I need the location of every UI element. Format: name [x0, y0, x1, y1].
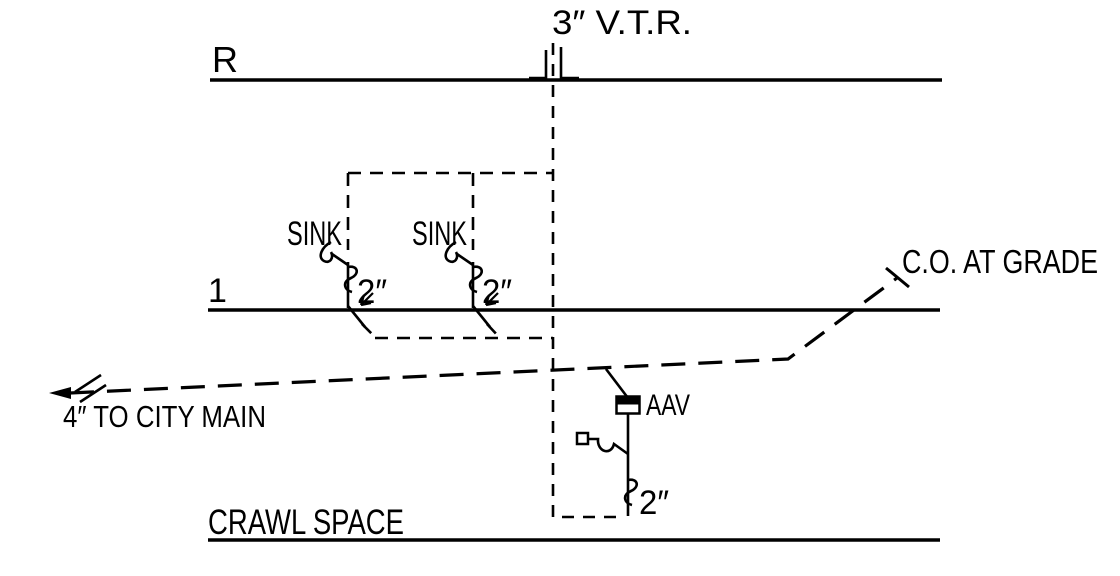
roof-level-label: R: [212, 39, 238, 80]
fixture-trap-arm: [588, 439, 628, 454]
aav-group: AAV 2″: [577, 369, 690, 522]
under-floor-branch-dashed-line: [362, 324, 553, 338]
pipe-break-marks: [75, 375, 106, 402]
aav-size-label: 2″: [639, 484, 669, 522]
aav-label: AAV: [646, 389, 690, 422]
aav-valve-cap: [617, 397, 640, 405]
diagram-svg: R 1 CRAWL SPACE 3″ V.T.R. SINK 2″ SINK 2…: [0, 0, 1120, 576]
fixture-outlet-box: [577, 433, 588, 444]
drain-direction-arrowhead: [49, 387, 71, 399]
to-city-main-label: 4″ TO CITY MAIN: [63, 399, 266, 434]
crawl-space-label: CRAWL SPACE: [208, 503, 404, 542]
aav-branch-pipe: [606, 369, 628, 398]
vtr-label: 3″ V.T.R.: [552, 4, 692, 42]
plumbing-riser-diagram: R 1 CRAWL SPACE 3″ V.T.R. SINK 2″ SINK 2…: [0, 0, 1120, 576]
floor-level-label: 1: [208, 272, 227, 310]
cleanout-label: C.O. AT GRADE: [902, 243, 1098, 280]
sink-2-label: SINK: [412, 215, 467, 253]
sink-1-label: SINK: [287, 215, 342, 253]
